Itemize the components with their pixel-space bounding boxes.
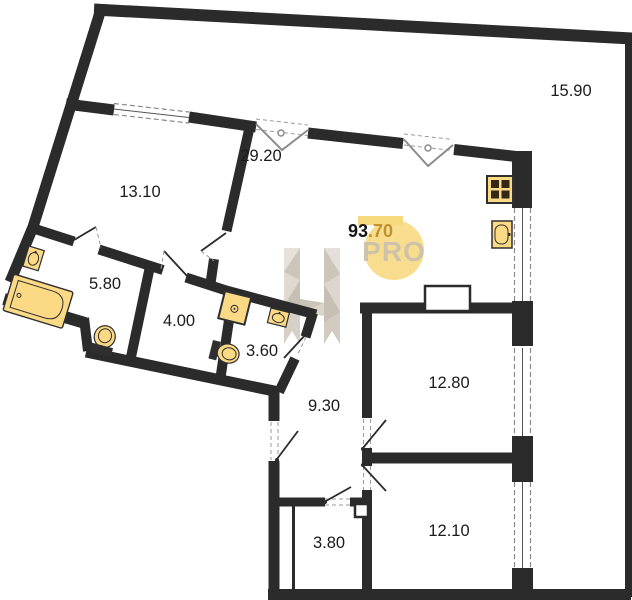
- door-bedroom-left: [201, 233, 226, 261]
- door-bathroom: [74, 227, 101, 248]
- window-bedroom-bottom: [515, 482, 531, 568]
- door-storage: [161, 251, 188, 277]
- french-door-left: [256, 119, 308, 150]
- washing-machine-icon: [218, 291, 251, 325]
- wc-toilet-icon: [208, 340, 241, 365]
- room-label-storage: 4.00: [163, 312, 195, 330]
- room-label-hallway: 9.30: [308, 397, 340, 415]
- french-door-right: [404, 134, 453, 166]
- bathtub-icon: [3, 274, 73, 328]
- shaft-box: [355, 504, 368, 517]
- room-label-living: 29.20: [240, 147, 281, 165]
- room-label-bedroom-left: 13.10: [119, 183, 160, 201]
- door-entry-room: [323, 487, 351, 505]
- door-bedroom-right-bottom: [361, 463, 386, 491]
- door-bedroom-right-top: [361, 419, 386, 451]
- room-label-bathroom: 5.80: [89, 275, 121, 293]
- niche-box: [425, 286, 470, 311]
- room-label-bedroom-right-top: 12.80: [428, 374, 469, 392]
- kitchen-sink-icon: [492, 221, 512, 248]
- pro-brand-label: PRO: [362, 236, 426, 267]
- room-label-wc: 3.60: [246, 342, 278, 360]
- pro-watermark: 93.70 PRO: [348, 216, 426, 280]
- room-label-bedroom-right-bottom: 12.10: [428, 522, 469, 540]
- bathroom-toilet-icon: [89, 323, 118, 357]
- room-label-entry: 3.80: [313, 534, 345, 552]
- room-label-terrace: 15.90: [550, 82, 591, 100]
- outer-walls: [4, 6, 632, 597]
- window-kitchen: [515, 208, 531, 301]
- window-top: [114, 104, 189, 124]
- floor-plan: 13.10 29.20 15.90 5.80 4.00 3.60 9.30 12…: [0, 0, 632, 600]
- door-entrance: [271, 422, 298, 462]
- window-bedroom-top: [515, 348, 531, 436]
- stove-icon: [487, 176, 513, 203]
